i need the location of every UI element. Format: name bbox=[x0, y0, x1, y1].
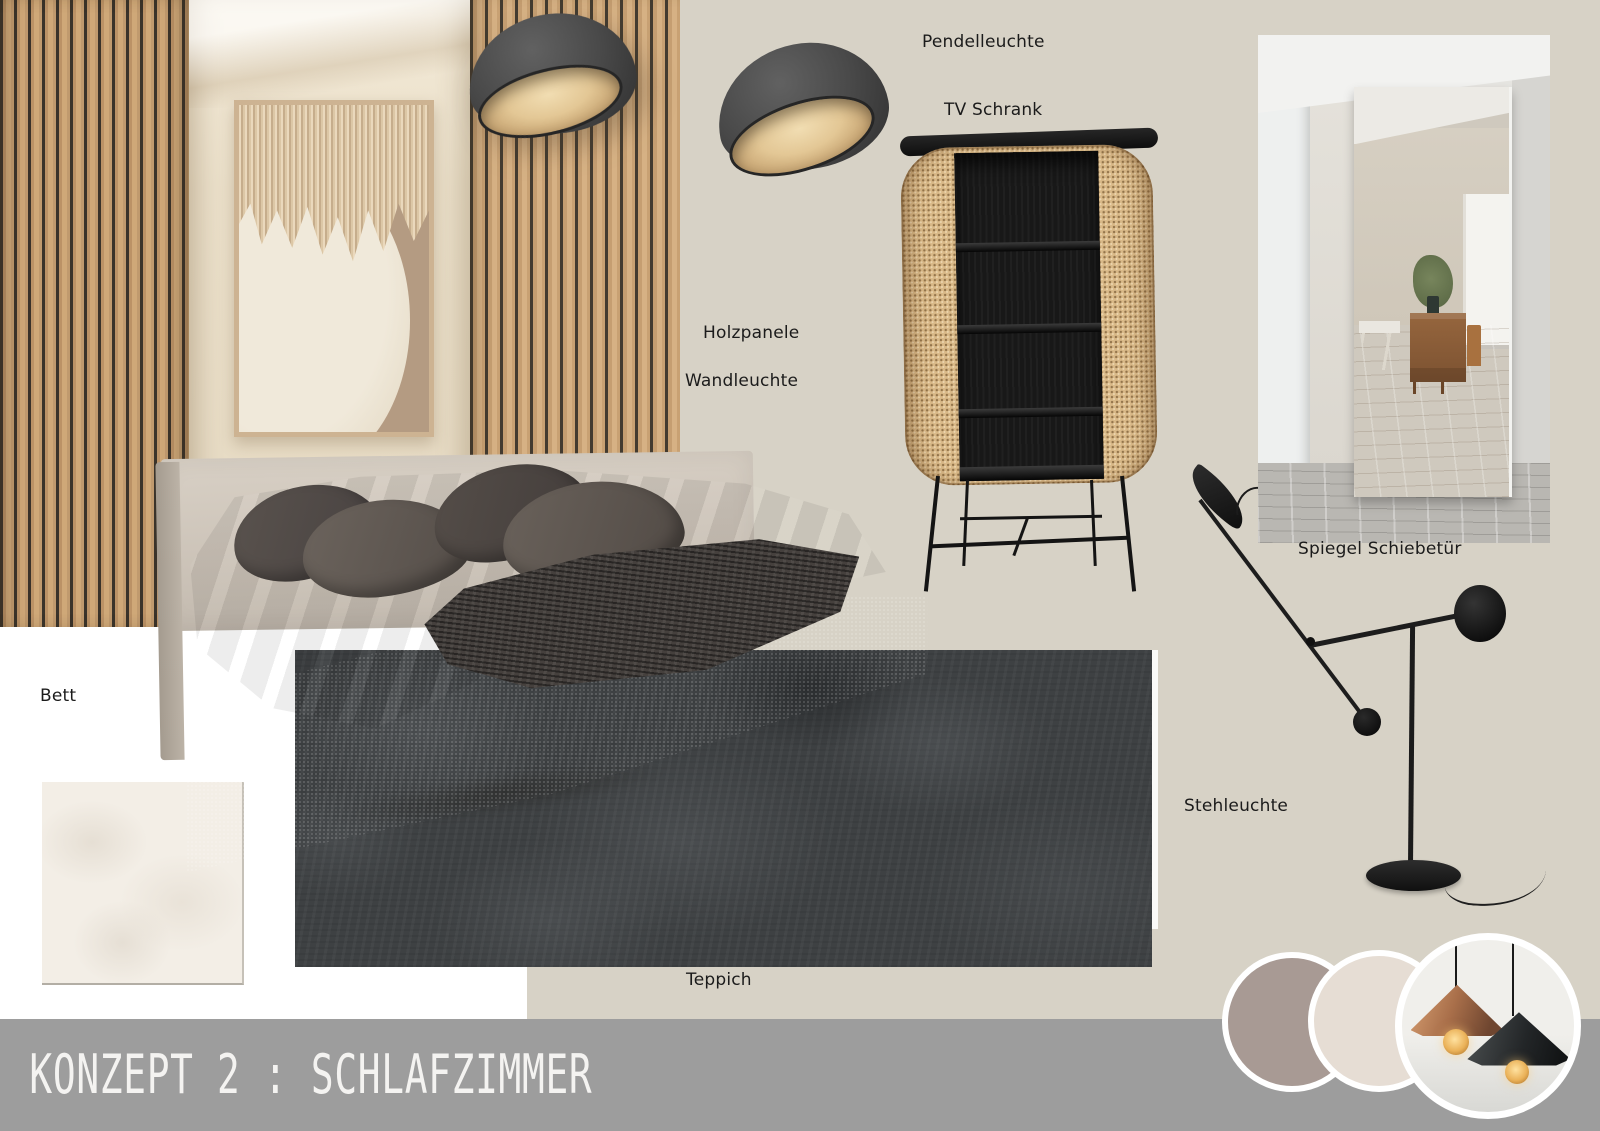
cabinet-shelf bbox=[959, 407, 1103, 419]
label-bed: Bett bbox=[40, 686, 76, 706]
pendant-cord bbox=[1455, 940, 1457, 988]
light-bulb-icon bbox=[1443, 1029, 1469, 1055]
wall-art bbox=[234, 100, 434, 437]
ceiling-dome-lamp-right bbox=[706, 29, 899, 186]
floor-lamp-counterweight bbox=[1353, 708, 1381, 736]
cabinet-leg bbox=[1120, 476, 1136, 592]
cabinet-legs bbox=[930, 476, 1130, 602]
ceiling-dome-lamp-left bbox=[461, 4, 642, 144]
cabinet-leg bbox=[962, 480, 969, 566]
cabinet-cross-bar bbox=[960, 515, 1102, 520]
floor-lamp-disc-head bbox=[1454, 585, 1506, 642]
floor-lamp-pole bbox=[1408, 626, 1415, 876]
label-pendant-lamp: Pendelleuchte bbox=[922, 32, 1045, 52]
mirror-panel bbox=[1354, 87, 1512, 497]
reflection-stool bbox=[1467, 325, 1481, 366]
light-bulb-icon bbox=[1505, 1060, 1529, 1084]
cabinet-cross-bar bbox=[1012, 517, 1028, 556]
floor-lamp-horizontal-arm bbox=[1310, 611, 1469, 647]
cabinet-interior bbox=[954, 151, 1104, 481]
reflection-bench bbox=[1359, 321, 1401, 333]
label-floor-lamp: Stehleuchte bbox=[1184, 796, 1288, 816]
label-mirror-sliding-door: Spiegel Schiebetür bbox=[1298, 539, 1462, 559]
mirror-sliding-door-photo bbox=[1258, 35, 1550, 543]
bedroom-ceiling bbox=[189, 0, 470, 108]
label-wall-lamp: Wandleuchte bbox=[685, 371, 798, 391]
bed-cutout bbox=[150, 448, 950, 878]
floor-lamp-cord bbox=[1444, 859, 1547, 911]
reflection-sideboard-legs bbox=[1413, 382, 1463, 394]
pendant-cord bbox=[1512, 940, 1514, 1016]
board-title: KONZEPT 2 : SCHLAFZIMMER bbox=[0, 1048, 592, 1102]
reflection-bench-legs bbox=[1362, 333, 1398, 370]
pendant-lamps-photo-circle bbox=[1395, 933, 1581, 1119]
mood-board: KONZEPT 2 : SCHLAFZIMMER Pendelleuchte T… bbox=[0, 0, 1600, 1131]
floor-lamp-pivot bbox=[1306, 637, 1315, 646]
label-tv-cabinet: TV Schrank bbox=[944, 100, 1042, 120]
rug-edge-highlight bbox=[1152, 650, 1158, 929]
cabinet-cane-body bbox=[900, 144, 1158, 486]
cabinet-cross-bar bbox=[930, 536, 1130, 549]
cabinet-shelf bbox=[956, 241, 1100, 253]
reflection-sideboard bbox=[1410, 313, 1466, 383]
cabinet-shelf bbox=[957, 323, 1101, 335]
cabinet-leg bbox=[1090, 480, 1097, 566]
label-wood-panels: Holzpanele bbox=[703, 323, 799, 343]
label-rug: Teppich bbox=[686, 970, 752, 990]
